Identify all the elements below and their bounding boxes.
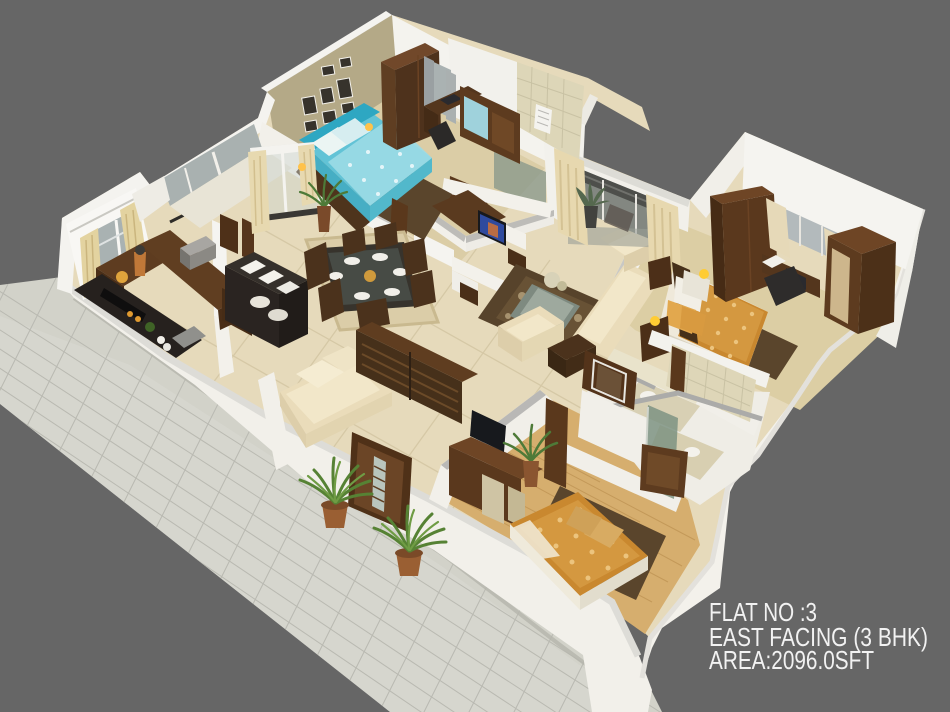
svg-text:AREA:2096.0SFT: AREA:2096.0SFT [709,645,874,675]
